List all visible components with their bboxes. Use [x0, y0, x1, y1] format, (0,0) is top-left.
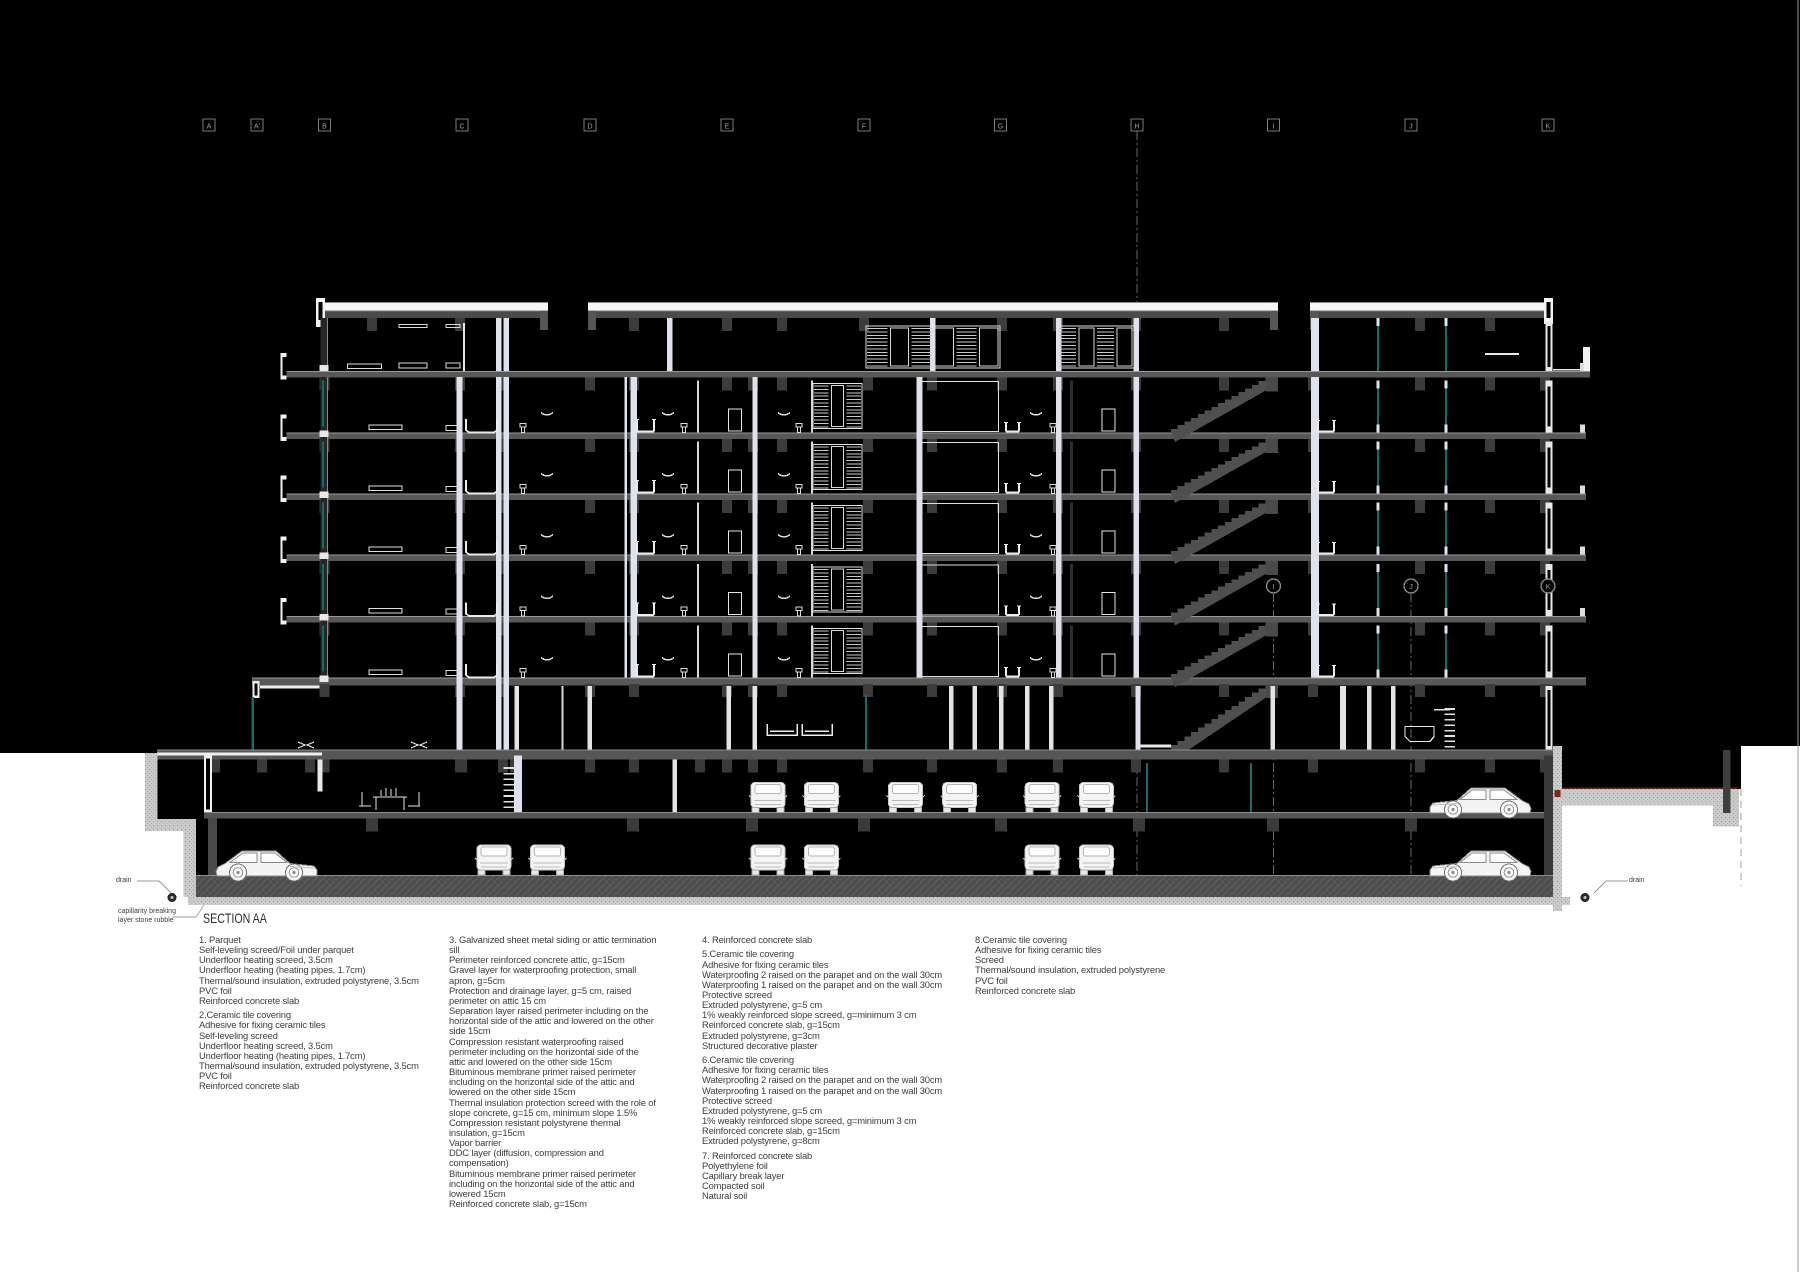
svg-text:C: C: [459, 124, 464, 131]
svg-text:G: G: [998, 124, 1003, 131]
svg-text:H: H: [1134, 124, 1139, 131]
svg-text:J: J: [1409, 582, 1413, 591]
svg-text:K: K: [1545, 582, 1550, 591]
svg-text:K: K: [1546, 124, 1551, 131]
svg-text:B: B: [322, 124, 327, 131]
svg-text:E: E: [725, 124, 730, 131]
svg-text:J: J: [1409, 124, 1413, 131]
svg-text:D: D: [587, 124, 592, 131]
svg-text:F: F: [862, 124, 866, 131]
svg-text:A: A: [207, 124, 212, 131]
svg-text:I: I: [1273, 124, 1275, 131]
svg-text:I: I: [1272, 582, 1274, 591]
svg-text:A': A': [254, 124, 260, 131]
